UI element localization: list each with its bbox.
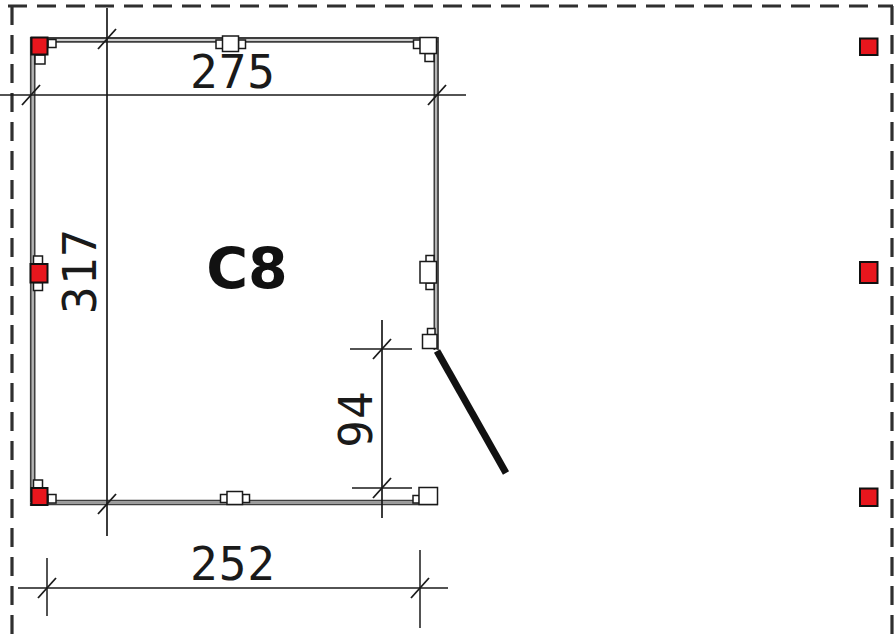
- door-leaf: [437, 351, 506, 473]
- site-boundary-dashed-border: [8, 6, 893, 640]
- room-label: C8: [206, 241, 288, 298]
- dimension-label-94: 94: [333, 390, 379, 447]
- floor-plan-drawing: [0, 0, 896, 640]
- post-door-hinge-icon: [423, 335, 438, 349]
- post-ear-icon: [243, 495, 250, 503]
- red-marker-right-middle-icon: [860, 262, 878, 283]
- post-ear-icon: [425, 54, 434, 62]
- post-top-right-icon: [420, 38, 437, 54]
- red-marker-top-left-icon: [32, 38, 48, 55]
- dimension-label-252: 252: [190, 541, 276, 587]
- post-ear-icon: [426, 283, 434, 290]
- dimension-label-317: 317: [57, 228, 103, 314]
- post-ear-icon: [34, 283, 43, 291]
- post-door-strike-icon: [419, 488, 438, 505]
- red-post-markers: [31, 38, 878, 507]
- post-ear-icon: [48, 495, 56, 504]
- floor-plan-canvas: 275 317 94 252 C8: [0, 0, 896, 640]
- post-bottom-middle-icon: [227, 492, 243, 505]
- dimension-label-275: 275: [190, 49, 276, 95]
- red-marker-bottom-left-icon: [32, 488, 48, 505]
- post-right-middle-icon: [420, 262, 437, 284]
- red-marker-middle-left-icon: [31, 264, 48, 283]
- red-marker-right-bottom-icon: [860, 489, 878, 507]
- post-ear-icon: [35, 55, 45, 64]
- dimension-lines: [0, 8, 466, 628]
- post-ear-icon: [48, 40, 56, 48]
- post-ear-icon: [34, 480, 43, 488]
- red-marker-right-top-icon: [860, 39, 878, 56]
